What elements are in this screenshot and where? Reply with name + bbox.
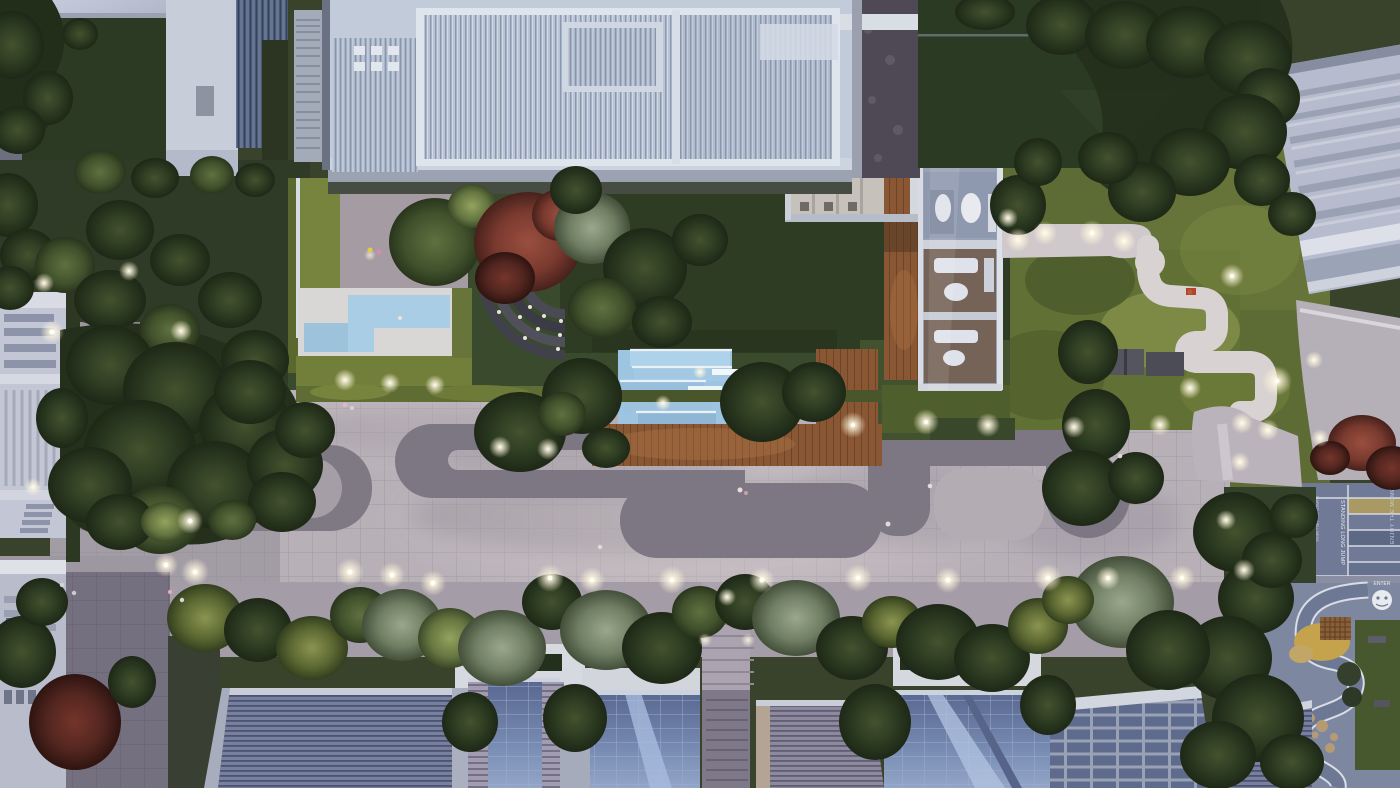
svg-text:STANDING LONG JUMP: STANDING LONG JUMP	[1339, 500, 1345, 565]
svg-text:ENTER: ENTER	[1374, 581, 1391, 587]
